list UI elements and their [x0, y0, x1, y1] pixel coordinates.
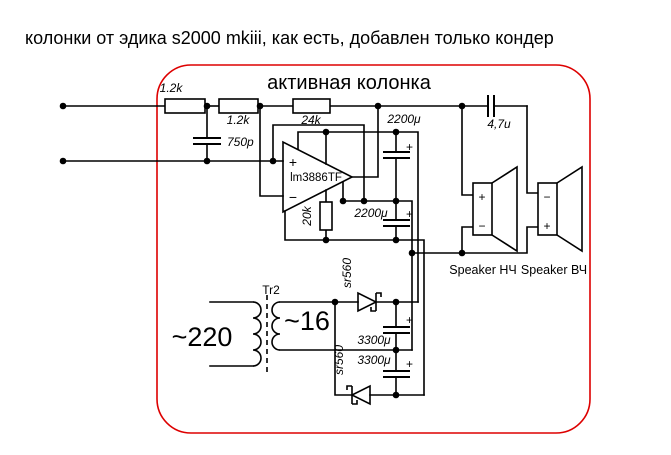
page-title: колонки от эдика s2000 mkiii, как есть, …	[25, 28, 554, 48]
junction-dot	[409, 250, 416, 257]
input-terminal-bottom	[60, 158, 67, 165]
box-title: активная колонка	[267, 72, 432, 94]
transformer-primary-coil	[253, 302, 261, 366]
junction-dot	[393, 392, 400, 399]
label-d-pos: sr560	[340, 258, 354, 288]
diode-d-neg-icon	[347, 386, 370, 404]
schematic-page: колонки от эдика s2000 mkiii, как есть, …	[0, 0, 671, 455]
junction-dot	[393, 299, 400, 306]
wire-vminus-rail	[285, 211, 424, 395]
label-transformer: Tr2	[262, 283, 280, 297]
woofer-plus-mark: +	[478, 190, 485, 204]
c-ps-pos-plus-mark: +	[406, 313, 413, 327]
junction-dot	[257, 103, 264, 110]
junction-dot	[323, 237, 330, 244]
junction-dot	[393, 129, 400, 136]
capacitor-c-out	[488, 95, 494, 117]
capacitor-c-ps-neg	[383, 371, 410, 377]
label-r-in2: 1.2k	[227, 113, 251, 127]
junction-dot	[393, 237, 400, 244]
junction-dot	[361, 198, 368, 205]
label-primary-voltage: ~220	[172, 322, 233, 352]
schematic-canvas: колонки от эдика s2000 mkiii, как есть, …	[0, 0, 671, 455]
tweeter-minus-mark: −	[543, 190, 550, 204]
junction-dot	[323, 129, 330, 136]
label-c-rail-neg: 2200μ	[353, 206, 388, 220]
wires	[63, 106, 538, 395]
woofer-minus-mark: −	[478, 219, 485, 233]
opamp-plus-mark: +	[289, 154, 297, 170]
wire-output-feedback	[352, 106, 378, 177]
resistor-r-feedback	[293, 99, 330, 113]
junction-dot	[270, 158, 277, 165]
wire-noninv-to-ground	[273, 125, 364, 201]
input-terminal-top	[60, 103, 67, 110]
junction-dot	[393, 347, 400, 354]
resistor-r-in2	[219, 99, 258, 113]
wire-tweeter-feed	[527, 106, 538, 193]
junction-dots	[60, 103, 466, 399]
opamp-minus-mark: −	[289, 189, 297, 205]
wire-woofer-plus	[462, 106, 473, 195]
label-r-in1: 1.2k	[160, 81, 184, 95]
label-c-rail-pos: 2200μ	[386, 112, 421, 126]
resistor-r-mute	[320, 202, 332, 230]
label-c-ps-pos: 3300μ	[357, 333, 391, 347]
c-rail-pos-plus-mark: +	[406, 140, 413, 154]
capacitor-c-filter	[193, 138, 221, 144]
transformer-secondary-coil	[272, 302, 280, 350]
label-c-out: 4,7u	[487, 117, 511, 131]
junction-dot	[340, 198, 347, 205]
resistor-r-in1	[165, 99, 205, 113]
label-c-ps-neg: 3300μ	[357, 353, 391, 367]
junction-dot	[459, 250, 466, 257]
tweeter-plus-mark: +	[543, 219, 550, 233]
label-speaker-tweeter: Speaker ВЧ	[521, 263, 587, 277]
label-c-filter: 750p	[227, 135, 254, 149]
junction-dot	[204, 103, 211, 110]
junction-dot	[204, 158, 211, 165]
wire-inverting-input	[260, 106, 283, 196]
active-speaker-boundary	[157, 65, 590, 433]
speaker-woofer-icon	[473, 167, 517, 251]
wire-woofer-minus	[462, 227, 473, 253]
label-secondary-voltage: ~16	[284, 306, 330, 336]
diode-d-pos-icon	[358, 293, 381, 311]
label-speaker-woofer: Speaker НЧ	[449, 263, 516, 277]
label-r-feedback: 24k	[300, 113, 321, 127]
junction-dot	[459, 103, 466, 110]
speaker-tweeter-icon	[538, 167, 582, 251]
junction-dot	[332, 299, 339, 306]
junction-dot	[393, 198, 400, 205]
c-ps-neg-plus-mark: +	[406, 357, 413, 371]
junction-dot	[375, 103, 382, 110]
label-d-neg: sr560	[332, 345, 346, 375]
label-opamp: lm3886TF	[290, 172, 342, 184]
label-r-mute: 20k	[300, 205, 314, 226]
c-rail-neg-plus-mark: +	[406, 207, 413, 221]
